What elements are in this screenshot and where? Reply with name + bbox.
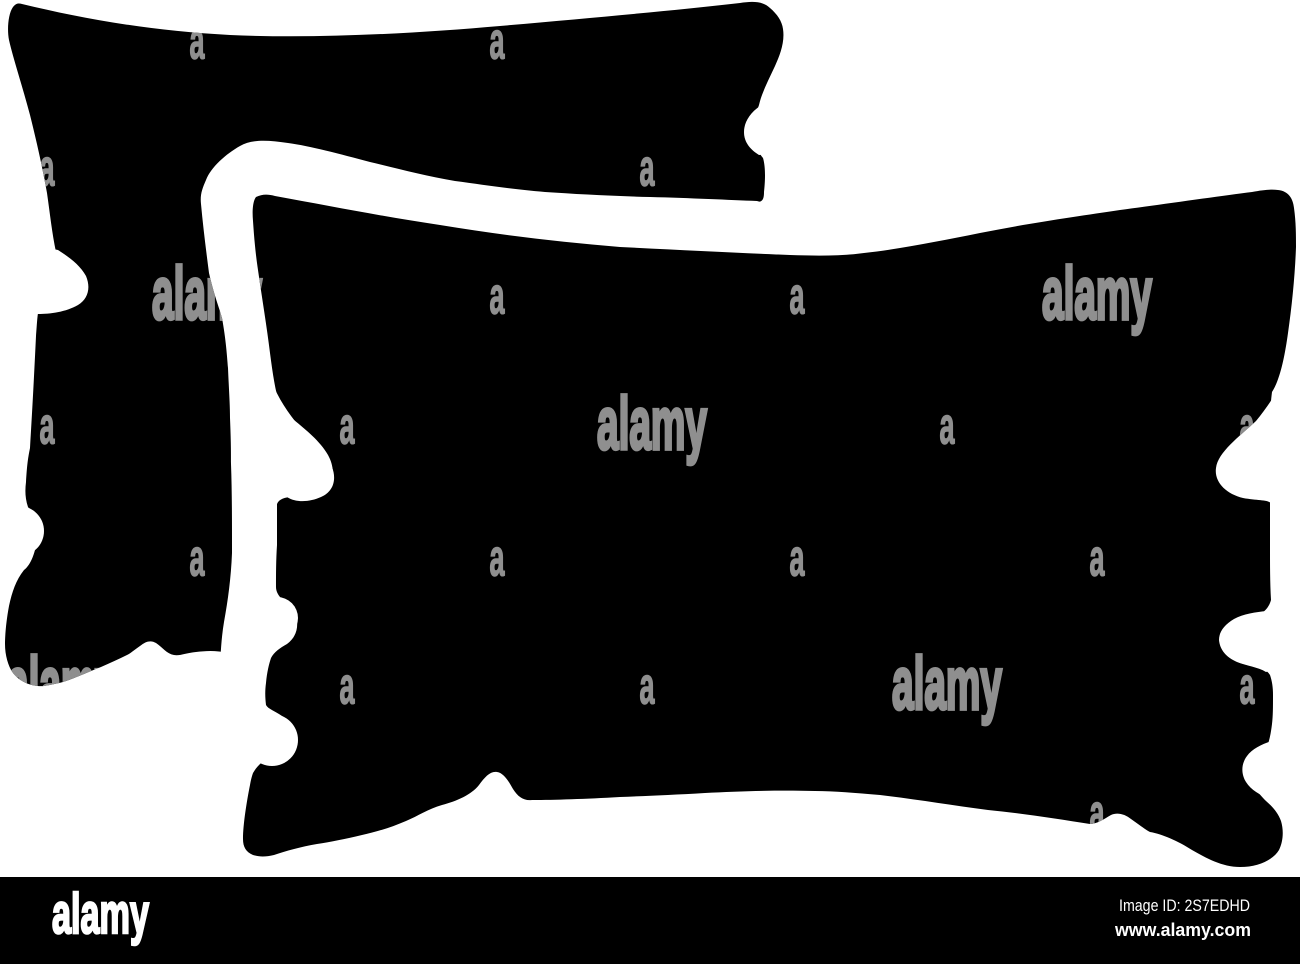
svg-text:a: a [640, 140, 656, 198]
svg-text:www.alamy.com: www.alamy.com [1114, 920, 1251, 940]
svg-text:a: a [190, 785, 206, 843]
svg-text:a: a [490, 785, 506, 843]
svg-text:alamy: alamy [52, 882, 149, 946]
svg-text:a: a [490, 13, 506, 71]
svg-text:Image ID: 2S7EDHD: Image ID: 2S7EDHD [1119, 897, 1250, 915]
svg-text:a: a [790, 785, 806, 843]
svg-text:a: a [340, 398, 356, 456]
svg-text:a: a [1090, 13, 1106, 71]
svg-text:a: a [1240, 140, 1256, 198]
svg-text:a: a [940, 140, 956, 198]
svg-text:a: a [190, 13, 206, 71]
svg-text:a: a [340, 658, 356, 716]
svg-text:a: a [790, 268, 806, 326]
svg-text:a: a [1090, 530, 1106, 588]
svg-text:alamy: alamy [597, 382, 707, 465]
svg-text:a: a [490, 268, 506, 326]
svg-text:a: a [790, 530, 806, 588]
svg-text:a: a [340, 140, 356, 198]
svg-text:alamy: alamy [892, 642, 1002, 725]
svg-text:alamy: alamy [1042, 252, 1152, 335]
svg-text:a: a [40, 398, 56, 456]
svg-text:a: a [190, 530, 206, 588]
svg-text:a: a [1240, 658, 1256, 716]
svg-text:a: a [790, 13, 806, 71]
svg-text:a: a [40, 140, 56, 198]
svg-text:alamy: alamy [7, 642, 117, 725]
svg-text:a: a [1090, 785, 1106, 843]
svg-text:a: a [940, 398, 956, 456]
svg-text:a: a [640, 658, 656, 716]
svg-text:alamy: alamy [152, 252, 262, 335]
svg-text:a: a [490, 530, 506, 588]
svg-text:a: a [1240, 398, 1256, 456]
